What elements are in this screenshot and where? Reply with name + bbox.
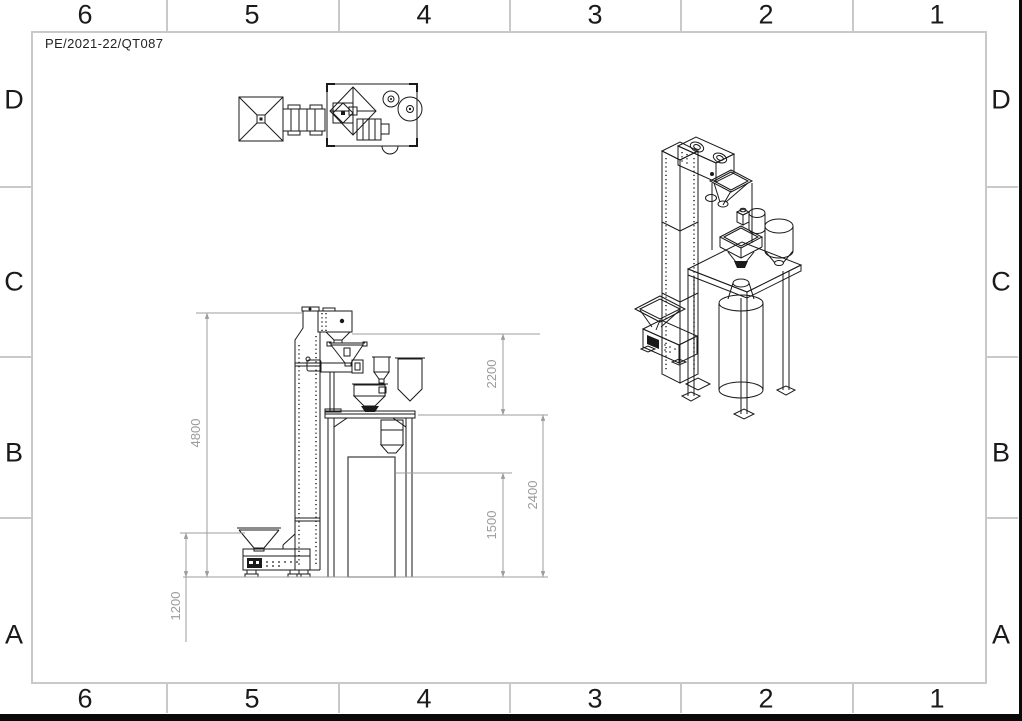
bucket-elevator-column bbox=[295, 307, 320, 570]
iso-support-table bbox=[682, 242, 801, 419]
elevator-head bbox=[318, 308, 352, 343]
base-feeder-unit bbox=[237, 528, 310, 577]
iso-elevator-column bbox=[662, 142, 710, 390]
plan-infeed-hopper bbox=[239, 97, 283, 141]
plan-conveyor bbox=[283, 105, 325, 135]
iso-feeder-motor bbox=[737, 208, 749, 225]
dimension-label-platform-height: 2400 bbox=[525, 481, 540, 510]
window-edge-bottom bbox=[0, 714, 1022, 721]
support-table bbox=[325, 411, 415, 577]
front-elevation-view: 4800 1200 2200 1500 2400 bbox=[168, 307, 548, 642]
receiving-funnel bbox=[327, 342, 367, 366]
dimension-label-bag-frame-height: 1500 bbox=[484, 511, 499, 540]
plan-motor-circle-large bbox=[398, 97, 422, 121]
drawing-sheet: 6 5 4 3 2 1 6 5 4 3 2 1 D C B A D C B A … bbox=[0, 0, 1022, 721]
dimension-label-discharge-clearance: 2200 bbox=[484, 360, 499, 389]
plan-view bbox=[239, 84, 422, 154]
isometric-view bbox=[635, 137, 801, 419]
storage-silo bbox=[395, 358, 425, 401]
plan-bottom-arc bbox=[382, 146, 398, 154]
dimension-label-infeed-height: 1200 bbox=[168, 592, 183, 621]
front-view-dimensions: 4800 1200 2200 1500 2400 bbox=[168, 313, 548, 642]
plan-drive-block bbox=[357, 119, 389, 140]
drawing-canvas: 4800 1200 2200 1500 2400 bbox=[0, 0, 1022, 721]
cyclone-hopper bbox=[372, 357, 391, 383]
plan-motor-circle-small bbox=[383, 91, 399, 107]
dimension-label-overall-height: 4800 bbox=[188, 419, 203, 448]
bag-spout bbox=[381, 420, 403, 453]
iso-dosing-cylinders bbox=[749, 209, 793, 266]
weigh-hopper bbox=[352, 384, 388, 412]
big-bag-outline bbox=[348, 457, 395, 577]
